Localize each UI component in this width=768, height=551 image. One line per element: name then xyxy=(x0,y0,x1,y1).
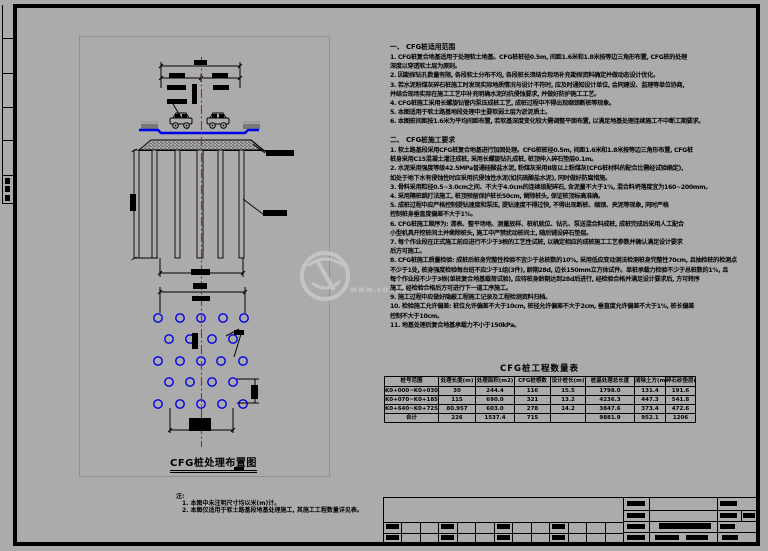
spec-line: 6. CFG桩施工顺序为: 清表、整平场地、测量放样、桩机就位、钻孔、泵送混合料… xyxy=(390,220,760,229)
vehicle-icon xyxy=(207,113,229,128)
centerline-label-blob xyxy=(192,84,197,104)
titleblock-field-blob xyxy=(722,535,738,540)
titleblock-label-blob xyxy=(441,524,454,529)
pile-spacing-text-blob xyxy=(192,333,198,349)
spec-line: 小型机具开挖桩间土并凿除桩头, 施工中严禁扰动桩间土, 随后铺设碎石垫层。 xyxy=(390,229,760,238)
col-header: 处理长度(m) xyxy=(439,377,476,387)
cell: K0+070~K0+185 xyxy=(385,396,439,405)
titleblock-field-blob xyxy=(686,535,708,540)
cell: 4236.3 xyxy=(586,396,635,405)
spec-section-construction: 二、 CFG桩施工要求 1. 软土路基段采用CFG桩复合地基进行加固处理。CFG… xyxy=(390,135,760,335)
spec-section-usage: 一、 CFG桩适用范围 1. CFG桩复合地基适用于处理软土地基。CFG桩桩径0… xyxy=(390,42,760,136)
lane-label-blob xyxy=(213,85,229,90)
spec-line: 5. 成桩过程中应严格控制提钻速度和泵压, 提钻速度不得过快, 不得出现断桩、缩… xyxy=(390,201,760,210)
cad-drawing-page: { "colors":{ "background":"#ababab", "li… xyxy=(0,0,768,551)
spec-line: 4. CFG桩施工采用长螺旋钻管内泵压成桩工艺, 成桩过程中不得出现缩颈断桩等现… xyxy=(390,99,760,108)
road-surface-line xyxy=(139,130,259,133)
quantity-table-title: CFG桩工程数量表 xyxy=(384,362,695,374)
cell xyxy=(551,414,586,423)
pavement-label-blob xyxy=(167,99,187,104)
plan-dimension-text-blob xyxy=(193,283,207,289)
note-item: 2. 本图仅适用于软土路基段地基处理施工, 其施工工程数量详见表。 xyxy=(176,507,386,514)
quantity-table-header-row: 桩号范围 处理长度(m) 处理面积(m2) CFG桩根数 设计桩长(m) 桩基处… xyxy=(385,377,696,387)
titleblock-label-blob xyxy=(552,535,565,540)
cfg-pile-label-blob xyxy=(263,210,287,216)
cell: 278 xyxy=(515,405,551,414)
table-row: K0+070~K0+185 115 690.0 321 13.2 4236.3 … xyxy=(385,396,696,405)
cell: 15.5 xyxy=(551,387,586,396)
col-header: 设计桩长(m) xyxy=(551,377,586,387)
titleblock-field-blob xyxy=(720,513,737,518)
titleblock-field-blob xyxy=(627,501,645,506)
treatment-width-text-blob xyxy=(191,269,210,275)
cell: 715 xyxy=(515,414,551,423)
cell: 9881.9 xyxy=(586,414,635,423)
cell: 321 xyxy=(515,396,551,405)
spec-line: 3. 骨料采用粒径0.5~3.0cm之间、不大于4.0cm的连续级配碎石, 含泥… xyxy=(390,183,760,192)
spec-heading: 一、 CFG桩适用范围 xyxy=(390,42,760,53)
titleblock-field-blob xyxy=(720,501,737,506)
spec-line: 每个作业段不少于3根(单桩复合地基载荷试验), 应待桩身龄期达到28d后进行, … xyxy=(390,275,760,284)
cell: 1537.4 xyxy=(476,414,515,423)
gravel-cushion-label-blob xyxy=(266,150,294,156)
cell: 80.957 xyxy=(439,405,476,414)
titleblock-field-blob xyxy=(655,535,679,540)
spec-line: 3. 若水泥粉煤灰碎石桩施工时发现实际地质情况与设计不符时, 应及时通知设计单位… xyxy=(390,81,760,90)
cell: 115 xyxy=(439,396,476,405)
cell: 952.1 xyxy=(635,414,666,423)
cell: K0+000~K0+030 xyxy=(385,387,439,396)
spec-line: 桩身采用C15混凝土灌注成桩, 采用长螺旋钻孔成桩, 桩顶伸入碎石垫层0.1m。 xyxy=(390,155,760,164)
dimension-text-blob xyxy=(169,73,185,78)
pile-length-dimension-blob xyxy=(130,194,136,211)
cell: 14.2 xyxy=(551,405,586,414)
plan-caption: CFG桩处理布置图 xyxy=(170,454,257,473)
cell: K0+640~K0+725.957 xyxy=(385,405,439,414)
vehicle-icon xyxy=(170,113,192,128)
spec-line: 如处于地下水有侵蚀性时应采用抗侵蚀性水泥(如抗硫酸盐水泥), 同时做好防腐措施。 xyxy=(390,174,760,183)
quantity-table: 桩号范围 处理长度(m) 处理面积(m2) CFG桩根数 设计桩长(m) 桩基处… xyxy=(384,376,696,423)
spec-line: 4. 采用隔桩跳打法施工, 桩顶预留保护桩长50cm, 凿除桩头, 保证桩顶标高… xyxy=(390,192,760,201)
dimension-text-blob xyxy=(194,60,207,65)
road-shoulder-blocks xyxy=(141,121,260,129)
spec-line: 2. 因勘探钻孔数量有限, 各段软土分布不均, 各段桩长须结合现场补充勘探资料确… xyxy=(390,71,760,80)
titleblock-label-blob xyxy=(441,535,454,540)
table-total-row: 合计 226 1537.4 715 9881.9 952.1 1206 xyxy=(385,414,696,423)
spec-line: 7. 每个作业段在正式施工前应进行不少于3根的工艺性试桩, 以确定相应的成桩施工… xyxy=(390,238,760,247)
cell: 373.4 xyxy=(635,405,666,414)
col-header: 桩号范围 xyxy=(385,377,439,387)
plan-callout-text-blob xyxy=(234,330,244,335)
col-header: 清除土方(m3) xyxy=(635,377,666,387)
plan-dimension-text-blob xyxy=(192,296,210,301)
cell: 690.0 xyxy=(476,396,515,405)
cell: 472.6 xyxy=(666,405,696,414)
spec-line: 并结合现场实际在施工工艺中补充明确水泥的抗侵蚀要求, 并做好防护施工工艺。 xyxy=(390,90,760,99)
cell: 447.3 xyxy=(635,396,666,405)
titleblock-label-blob xyxy=(552,524,565,529)
col-header: 碎石砂垫层(m3) xyxy=(666,377,696,387)
spec-line: 控制桩身垂直度偏差不大于1%。 xyxy=(390,210,760,219)
spec-line: 1. 软土路基段采用CFG桩复合地基进行加固处理。CFG桩桩径0.5m, 间距1… xyxy=(390,146,760,155)
drawing-notes: 注: 1. 本图中未注明尺寸均以米(m)计。 2. 本图仅适用于软土路基段地基处… xyxy=(176,493,386,515)
col-header: 桩基处理总长度 xyxy=(586,377,635,387)
titleblock-label-blob xyxy=(386,535,399,540)
titleblock-drawing-name-blob xyxy=(659,523,711,529)
cell: 30 xyxy=(439,387,476,396)
cell: 191.6 xyxy=(666,387,696,396)
cell: 13.2 xyxy=(551,396,586,405)
titleblock-label-blob xyxy=(497,524,510,529)
titleblock-field-blob xyxy=(627,513,645,518)
titleblock-label-blob xyxy=(386,524,399,529)
spec-heading: 二、 CFG桩施工要求 xyxy=(390,135,760,146)
spec-line: 后方可施工。 xyxy=(390,247,760,256)
cell: 合计 xyxy=(385,414,439,423)
spec-line: 2. 水泥采用强度等级42.5MPa普通硅酸盐水泥, 粉煤灰采用Ⅱ级以上粉煤灰(… xyxy=(390,164,760,173)
col-header: 处理面积(m2) xyxy=(476,377,515,387)
cell: 3847.6 xyxy=(586,405,635,414)
spec-line: 5. 本图适用于软土路基地段处理中主要软弱土层为淤泥质土。 xyxy=(390,108,760,117)
cell: 116 xyxy=(515,387,551,396)
lane-label-blob xyxy=(167,85,186,90)
table-row: K0+640~K0+725.957 80.957 603.0 278 14.2 … xyxy=(385,405,696,414)
spec-line: 8. CFG桩施工质量检验: 成桩后桩身完整性检验不宜少于总桩数的10%, 采用… xyxy=(390,256,760,265)
spec-line: 不少于1处, 桩身强度检验每台班不应少于1组(3件), 龄期28d, 边长150… xyxy=(390,266,760,275)
titleblock-field-blob xyxy=(743,513,755,518)
titleblock-field-blob xyxy=(627,535,645,540)
dimension-text-blob xyxy=(212,73,228,78)
spec-line: 9. 施工过程中应做好隐蔽工程施工记录及工程检测资料归档。 xyxy=(390,293,760,302)
titleblock-label-blob xyxy=(497,535,510,540)
spec-line: 控制不大于10cm。 xyxy=(390,312,760,321)
cell: 1206 xyxy=(666,414,696,423)
cell: 226 xyxy=(439,414,476,423)
title-block xyxy=(383,497,756,542)
table-row: K0+000~K0+030 30 244.4 116 15.5 1798.0 1… xyxy=(385,387,696,396)
spec-line: 施工, 经检验合格后方可进行下一道工序施工。 xyxy=(390,284,760,293)
cfg-piles-section xyxy=(132,149,264,260)
cell: 1798.0 xyxy=(586,387,635,396)
spec-line: 6. 本图桩间距按1.6米为平均间距布置, 若软基深度变化较大需调整平面布置, … xyxy=(390,117,760,126)
cell: 244.4 xyxy=(476,387,515,396)
spec-line: 10. 检验施工允许偏差: 桩位允许偏差不大于10cm, 桩径允许偏差不大于2c… xyxy=(390,302,760,311)
pile-spacing-text-blob xyxy=(251,385,258,399)
spec-line: 1. CFG桩复合地基适用于处理软土地基。CFG桩桩径0.5m, 间距1.6米和… xyxy=(390,53,760,62)
cell: 541.8 xyxy=(666,396,696,405)
titleblock-field-blob xyxy=(627,524,645,529)
spec-line: 11. 地基处理后复合地基承载力不小于150kPa。 xyxy=(390,321,760,330)
spec-line: 深度以穿透软土层为原则。 xyxy=(390,62,760,71)
plan-bottom-dimension-blob xyxy=(189,418,211,431)
titleblock-field-blob xyxy=(720,524,735,529)
col-header: CFG桩根数 xyxy=(515,377,551,387)
cell: 131.4 xyxy=(635,387,666,396)
cell: 603.0 xyxy=(476,405,515,414)
